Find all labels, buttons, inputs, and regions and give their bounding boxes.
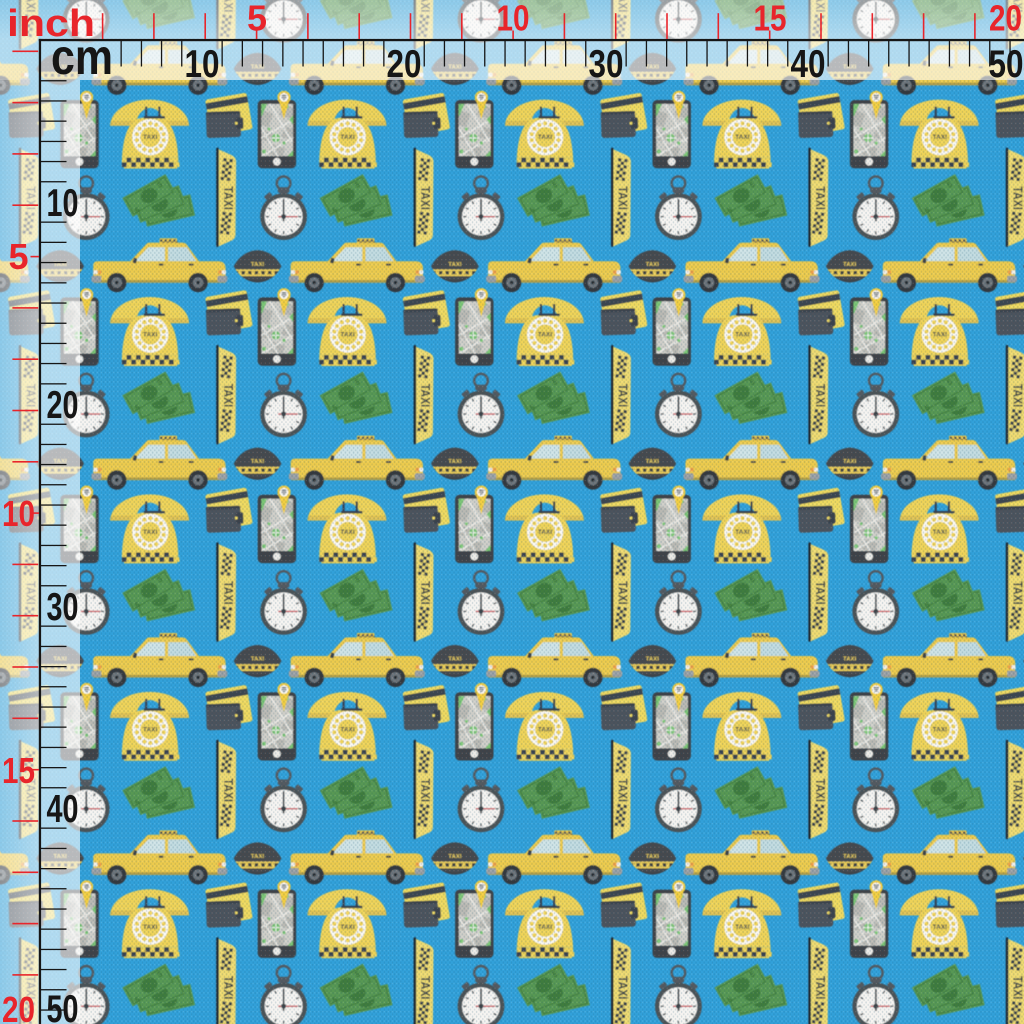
svg-text:5: 5 [8,236,28,277]
svg-text:20: 20 [989,0,1022,39]
svg-text:50: 50 [47,988,79,1024]
svg-text:20: 20 [47,384,79,427]
svg-text:15: 15 [754,0,787,39]
svg-text:15: 15 [2,750,35,791]
svg-text:10: 10 [47,182,79,225]
svg-text:30: 30 [589,43,624,86]
svg-text:40: 40 [791,43,826,86]
svg-text:30: 30 [47,586,79,629]
svg-text:10: 10 [497,0,530,39]
svg-text:cm: cm [51,29,113,85]
svg-text:40: 40 [47,788,79,831]
svg-text:20: 20 [387,43,422,86]
svg-text:20: 20 [2,989,35,1024]
svg-text:5: 5 [247,0,267,39]
svg-text:10: 10 [2,493,35,534]
svg-text:10: 10 [185,43,220,86]
svg-text:50: 50 [989,43,1024,86]
